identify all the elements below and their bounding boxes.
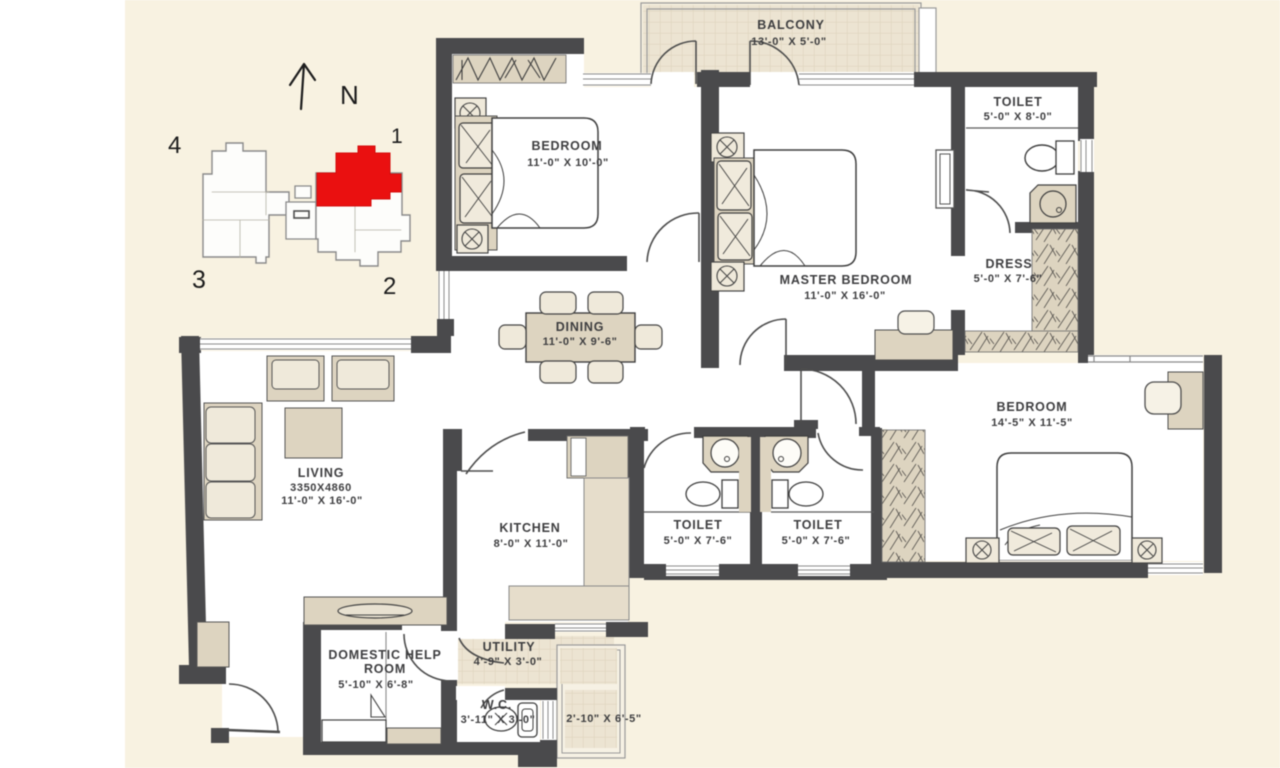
svg-text:DOMESTIC HELP: DOMESTIC HELP [328,648,441,662]
svg-text:2'-10" X 6'-5": 2'-10" X 6'-5" [566,713,641,725]
svg-text:8'-0" X 11'-0": 8'-0" X 11'-0" [494,538,569,550]
svg-text:11'-0" X 10'-0": 11'-0" X 10'-0" [527,157,609,169]
svg-text:14'-5" X 11'-5": 14'-5" X 11'-5" [991,417,1073,429]
svg-text:11'-0" X 16'-0": 11'-0" X 16'-0" [281,495,363,507]
svg-text:2: 2 [383,273,396,300]
svg-text:TOILET: TOILET [673,518,722,532]
svg-text:KITCHEN: KITCHEN [499,521,560,535]
svg-text:DINING: DINING [556,320,605,334]
svg-text:DRESS: DRESS [985,257,1032,271]
svg-text:5'-0" X 7'-6": 5'-0" X 7'-6" [664,535,733,547]
svg-text:LIVING: LIVING [298,466,344,480]
svg-text:TOILET: TOILET [793,518,842,532]
svg-text:W.C.: W.C. [482,698,512,712]
svg-text:5'-10" X 6'-8": 5'-10" X 6'-8" [338,679,413,691]
svg-text:11'-0" X 9'-6": 11'-0" X 9'-6" [543,336,618,348]
svg-text:4'-9" X 3'-0": 4'-9" X 3'-0" [474,656,543,668]
svg-text:N: N [340,80,359,110]
svg-text:5'-0" X 7'-6": 5'-0" X 7'-6" [782,535,851,547]
svg-text:3350X4860: 3350X4860 [290,482,352,494]
svg-text:5'-0" X 7'-6": 5'-0" X 7'-6" [974,273,1043,285]
svg-text:5'-0" X 8'-0": 5'-0" X 8'-0" [984,111,1053,123]
svg-text:4: 4 [168,132,181,159]
svg-text:BEDROOM: BEDROOM [532,139,603,153]
svg-text:1: 1 [391,125,403,148]
svg-text:13'-0" X 5'-0": 13'-0" X 5'-0" [751,36,826,48]
svg-text:3: 3 [192,266,206,294]
svg-text:ROOM: ROOM [364,662,406,676]
svg-text:BALCONY: BALCONY [757,18,824,32]
svg-text:11'-0" X 16'-0": 11'-0" X 16'-0" [804,290,886,302]
svg-text:3'-11" X 3'-0": 3'-11" X 3'-0" [461,714,536,726]
svg-text:UTILITY: UTILITY [483,640,536,654]
svg-text:MASTER BEDROOM: MASTER BEDROOM [780,273,913,287]
svg-text:TOILET: TOILET [993,95,1042,109]
svg-text:BEDROOM: BEDROOM [997,400,1068,414]
